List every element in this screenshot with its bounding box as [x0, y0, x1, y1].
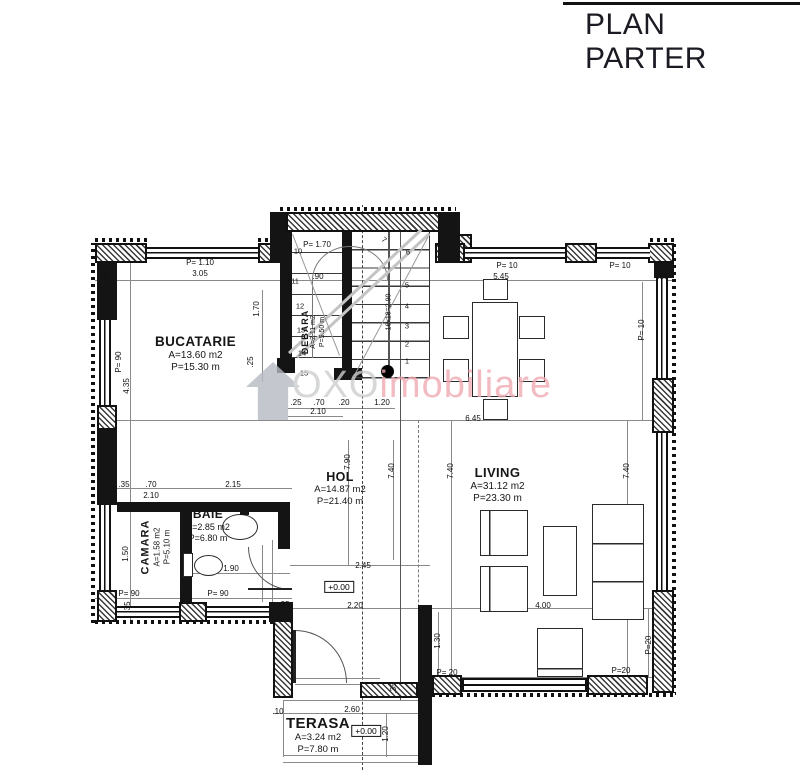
exterior-wall — [652, 590, 674, 693]
dim-label: P= 1.70 — [303, 241, 331, 249]
dim-label: .35 — [657, 273, 668, 281]
exterior-wall — [587, 675, 648, 695]
dim-label: 7.90 — [344, 454, 352, 470]
exterior-wall — [432, 675, 462, 695]
level-marker: +0.00 — [351, 725, 381, 737]
dining-chair — [519, 316, 545, 339]
exterior-wall — [95, 243, 147, 263]
stair-step-number: 14 — [298, 349, 306, 357]
dim-line — [288, 408, 395, 409]
exterior-wall — [648, 243, 674, 263]
dim-label: .90 — [312, 273, 323, 281]
toilet-tank — [183, 553, 193, 577]
armchair — [480, 510, 528, 556]
dim-label: .35 — [97, 273, 108, 281]
dim-label: 1.50 — [122, 546, 130, 562]
dim-line — [130, 263, 131, 620]
dim-label: 2.10 — [310, 408, 326, 416]
stair-count-note: 16x18=2.90 — [386, 294, 393, 331]
dim-label: 1.20 — [382, 726, 390, 742]
interior-wall — [280, 232, 292, 358]
exterior-wall — [565, 243, 597, 263]
dim-label: 1.90 — [223, 565, 239, 573]
dim-label: P= 10 — [609, 262, 630, 270]
dim-label: P= 20 — [436, 669, 457, 677]
dim-label: .70 — [313, 399, 324, 407]
bathroom-door-arc — [248, 547, 291, 590]
window — [656, 278, 668, 378]
dim-label: .35 — [390, 682, 398, 693]
exterior-wall — [97, 405, 117, 430]
dim-label: 2.15 — [225, 481, 241, 489]
wall-insulation — [95, 238, 147, 242]
window — [597, 247, 650, 259]
dim-label: 7.40 — [447, 463, 455, 479]
dim-label: .10 — [272, 708, 283, 716]
window — [99, 505, 111, 590]
exterior-wall — [438, 212, 460, 263]
dim-label: .25 — [247, 356, 255, 367]
wall-insulation — [650, 238, 676, 242]
entrance-door-leaf — [293, 630, 296, 683]
exterior-wall — [97, 590, 117, 622]
dim-label: P= 90 — [115, 351, 123, 372]
window — [656, 433, 668, 590]
stair-step-number: 15 — [300, 369, 308, 377]
window — [99, 320, 111, 405]
dim-label: 2.20 — [347, 602, 363, 610]
stair-step-number: 6 — [406, 248, 410, 256]
stair-step-number: 12 — [296, 302, 304, 310]
stair-step-number: 1 — [405, 357, 409, 365]
stair-step-number: 10 — [294, 247, 302, 255]
dim-line — [113, 488, 292, 489]
dim-label: 2.60 — [344, 706, 360, 714]
dining-table — [472, 302, 518, 397]
dim-line — [262, 290, 263, 382]
dim-label: P= 1.10 — [186, 259, 214, 267]
dim-label: 4.35 — [123, 378, 131, 394]
wall-insulation — [280, 207, 456, 211]
dim-label: .35 — [278, 601, 289, 609]
dim-label: 7.40 — [388, 463, 396, 479]
room-label-living: LIVING A=31.12 m2 P=23.30 m — [450, 466, 545, 506]
glazed-door — [462, 678, 587, 692]
room-label-hol: HOL A=14.87 m2 P=21.40 m — [300, 470, 380, 508]
dim-label: .20 — [338, 399, 349, 407]
exterior-wall — [418, 605, 432, 765]
floor-plan: PLAN PARTER — [0, 0, 800, 777]
dim-line — [115, 420, 672, 421]
dim-label: P= 10 — [496, 262, 517, 270]
dim-label: 2.10 — [143, 492, 159, 500]
dim-label: .70 — [145, 481, 156, 489]
dim-label: 1.30 — [434, 633, 442, 649]
entrance-door-arc — [295, 630, 347, 683]
stair-step-number: 2 — [405, 340, 409, 348]
window — [207, 606, 269, 618]
dining-chair — [519, 359, 545, 382]
toilet-bowl — [194, 555, 223, 576]
coffee-table — [543, 526, 577, 596]
stair-step-number: 3 — [405, 322, 409, 330]
sofa — [592, 504, 644, 620]
dim-label: P=20 — [645, 636, 653, 655]
dim-label: P= 90 — [118, 590, 139, 598]
dim-label: P=20 — [612, 667, 631, 675]
exterior-wall — [273, 610, 293, 698]
terrace-edge — [283, 700, 418, 701]
dim-line — [288, 416, 343, 417]
dim-label: .35 — [124, 601, 132, 612]
wall-insulation — [91, 243, 95, 623]
room-label-bucatarie: BUCATARIE A=13.60 m2 P=15.30 m — [133, 334, 258, 375]
title-rule — [563, 2, 800, 5]
level-marker: +0.00 — [324, 581, 354, 593]
dining-chair — [483, 399, 508, 420]
dim-label: 2.45 — [355, 562, 371, 570]
room-label-baie: BAIE A=2.85 m2 P=6.80 m — [172, 508, 244, 544]
exterior-wall — [179, 602, 207, 622]
dim-line — [393, 440, 394, 560]
dim-label: .25 — [290, 399, 301, 407]
exterior-wall — [97, 430, 117, 505]
dim-line — [642, 282, 643, 420]
terrace-edge — [283, 762, 432, 763]
stair-step-number: 4 — [405, 302, 409, 310]
dim-line — [451, 420, 452, 675]
room-label-terasa: TERASA A=3.24 m2 P=7.80 m — [282, 715, 354, 756]
dim-label: 1.20 — [374, 399, 390, 407]
stair-step-number: 5 — [405, 281, 409, 289]
interior-wall — [277, 358, 295, 373]
stair-step-number: 11 — [291, 277, 299, 285]
exterior-wall — [652, 378, 674, 433]
tv-cabinet — [537, 628, 583, 677]
dining-chair — [443, 316, 469, 339]
dim-label: 1.70 — [253, 301, 261, 317]
page-title: PLAN PARTER — [585, 8, 775, 76]
dim-label: 5.45 — [493, 273, 509, 281]
dining-chair — [443, 359, 469, 382]
exterior-wall — [286, 212, 446, 232]
dim-label: P= 90 — [207, 590, 228, 598]
stair-step-number: 13 — [297, 326, 305, 334]
dim-label: .35 — [118, 481, 129, 489]
dim-label: P= 10 — [638, 319, 646, 340]
interior-wall — [278, 512, 290, 549]
room-label-camara: CAMARA A=1.58 m2 P=5.10 m — [140, 497, 173, 597]
dim-label: 7.40 — [623, 463, 631, 479]
stair-start-dot — [381, 365, 394, 378]
dining-chair — [483, 279, 508, 300]
bathroom-door-leaf — [248, 588, 292, 590]
armchair — [480, 566, 528, 612]
dim-label: 4.00 — [535, 602, 551, 610]
dim-label: 6.45 — [465, 415, 481, 423]
window — [465, 247, 565, 259]
dim-label: 3.05 — [192, 270, 208, 278]
